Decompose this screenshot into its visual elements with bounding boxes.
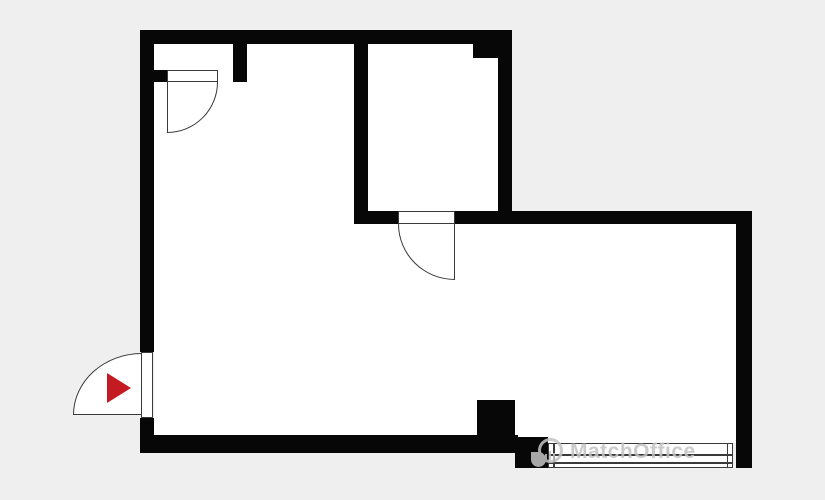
floor-small-room: [368, 43, 498, 211]
wall-smallroom-bottom-right-segment: [455, 211, 512, 224]
wall-niche-right-block: [233, 43, 247, 82]
watermark: MatchOffice: [531, 436, 696, 468]
wall-partition-smallroom-left: [354, 30, 368, 224]
wall-bottom-left: [140, 435, 518, 453]
small-room-door-threshold: [398, 211, 455, 224]
floor-plan: MatchOffice: [0, 0, 825, 500]
niche-door-threshold: [167, 70, 218, 82]
wall-top: [140, 30, 512, 44]
wall-right: [736, 211, 752, 468]
entrance-door-threshold: [141, 352, 153, 418]
column-pillar: [477, 400, 515, 435]
wall-niche-left-stub: [154, 70, 167, 82]
entrance-arrow-icon: [107, 373, 131, 403]
wall-partition-smallroom-right: [498, 44, 512, 211]
watermark-text: MatchOffice: [570, 440, 696, 464]
wall-smallroom-corner-notch: [473, 44, 498, 58]
wall-left-upper: [140, 30, 154, 352]
wall-smallroom-bottom-left-segment: [354, 211, 398, 224]
window-right-cap: [727, 444, 729, 467]
map-pin-logo-icon: [531, 437, 563, 468]
wall-top-right-section: [512, 211, 752, 224]
